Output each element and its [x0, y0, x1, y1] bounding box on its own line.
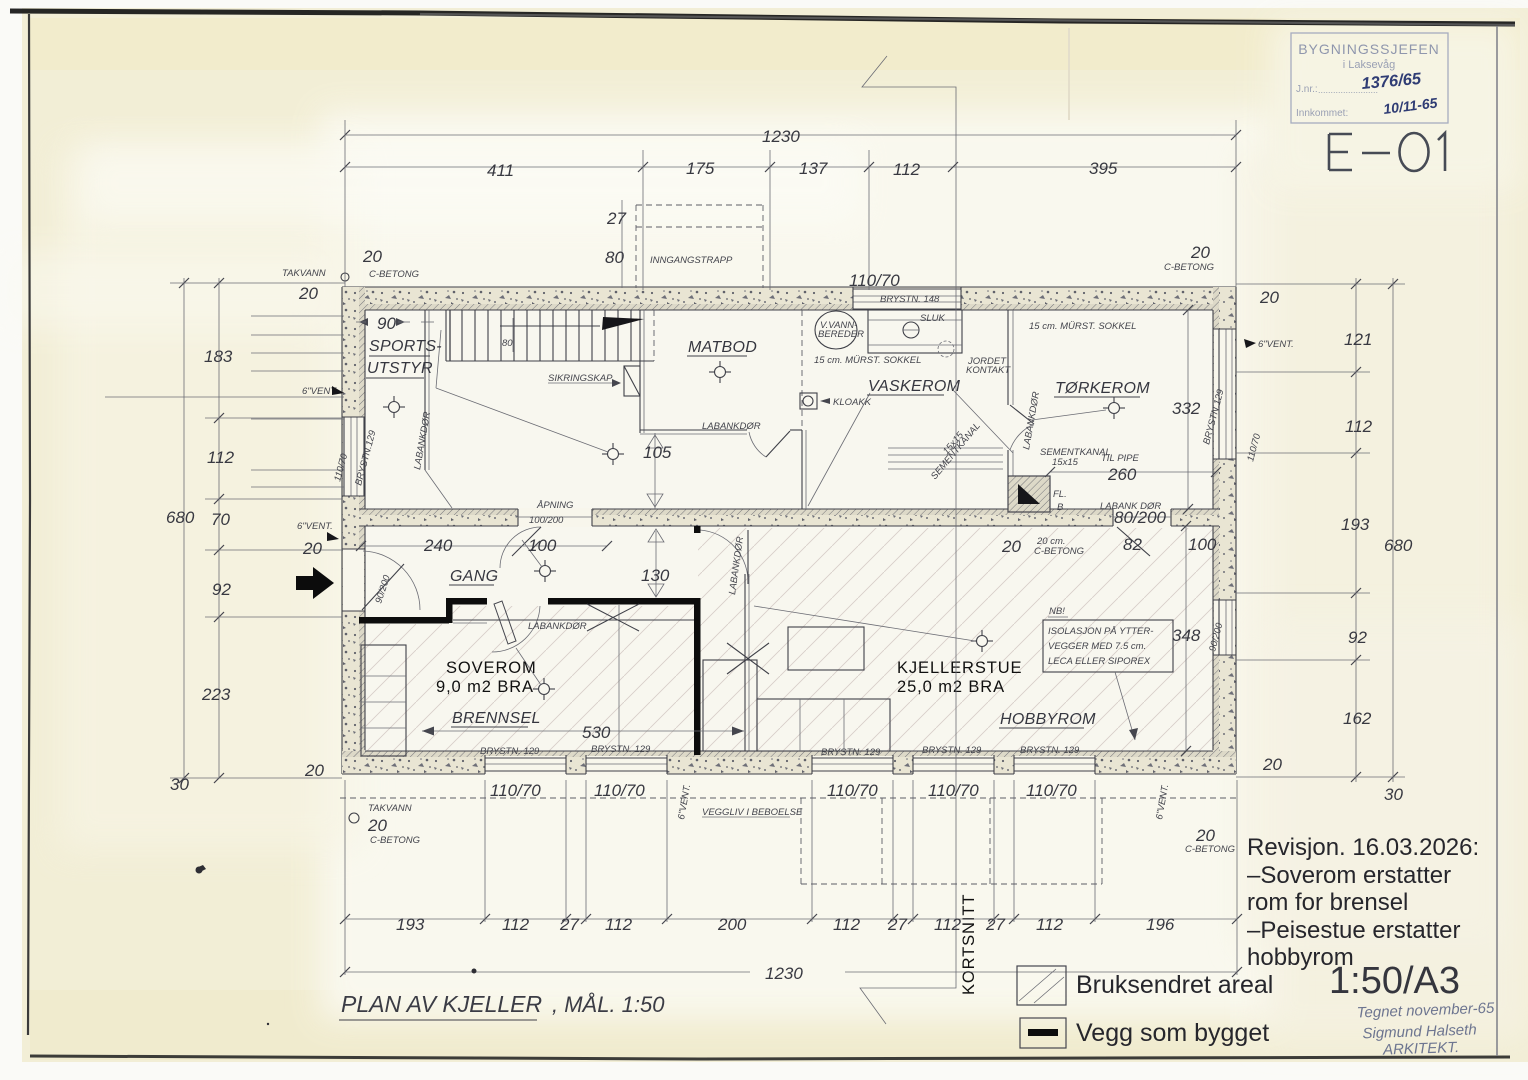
- svg-text:20: 20: [1259, 288, 1279, 307]
- svg-text:SOVEROM: SOVEROM: [446, 659, 537, 677]
- svg-text:INNGANGSTRAPP: INNGANGSTRAPP: [650, 255, 733, 266]
- svg-text:20: 20: [1001, 537, 1021, 556]
- svg-text:B: B: [1057, 502, 1064, 513]
- svg-text:20: 20: [367, 816, 387, 835]
- svg-text:110/70: 110/70: [1026, 781, 1077, 800]
- svg-text:90: 90: [377, 314, 396, 333]
- svg-text:105: 105: [643, 443, 672, 462]
- svg-text:ÅPNING: ÅPNING: [536, 500, 573, 511]
- svg-text:MATBOD: MATBOD: [688, 339, 757, 356]
- svg-text:130: 130: [641, 566, 670, 585]
- svg-text:27: 27: [559, 915, 579, 934]
- svg-text:110/70: 110/70: [827, 781, 878, 800]
- svg-text:Bruksendret areal: Bruksendret areal: [1076, 971, 1273, 999]
- svg-text:9,0 m2 BRA: 9,0 m2 BRA: [436, 678, 534, 696]
- svg-text:Innkommet:: Innkommet:: [1296, 108, 1348, 119]
- svg-text:BRYSTN. 129: BRYSTN. 129: [821, 747, 881, 758]
- svg-text:FL.: FL.: [1053, 489, 1067, 500]
- svg-text:BRENNSEL: BRENNSEL: [452, 710, 541, 727]
- svg-text:BYGNINGSSJEFEN: BYGNINGSSJEFEN: [1298, 41, 1440, 57]
- svg-text:KLOAKK: KLOAKK: [833, 397, 872, 408]
- svg-text:6"VENT.: 6"VENT.: [297, 521, 333, 532]
- svg-text:112: 112: [1036, 915, 1064, 934]
- svg-text:ARKITEKT.: ARKITEKT.: [1382, 1039, 1460, 1059]
- svg-text:121: 121: [1344, 330, 1372, 349]
- svg-text:ISOLASJON PÅ YTTER-: ISOLASJON PÅ YTTER-: [1048, 626, 1153, 637]
- svg-text:, MÅL. 1:50: , MÅL. 1:50: [552, 992, 665, 1017]
- svg-text:110/70: 110/70: [594, 781, 645, 800]
- svg-text:680: 680: [166, 508, 195, 527]
- svg-text:112: 112: [934, 915, 962, 934]
- svg-text:J.nr.:: J.nr.:: [1296, 84, 1318, 95]
- svg-text:112: 112: [833, 915, 861, 934]
- svg-text:KJELLERSTUE: KJELLERSTUE: [897, 659, 1022, 677]
- svg-text:411: 411: [487, 161, 514, 180]
- svg-text:BRYSTN. 129: BRYSTN. 129: [1020, 745, 1080, 756]
- svg-text:223: 223: [201, 685, 231, 704]
- svg-text:80: 80: [605, 248, 624, 267]
- svg-text:80/200: 80/200: [1114, 508, 1167, 527]
- svg-text:Revisjon. 16.03.2026:: Revisjon. 16.03.2026:: [1247, 834, 1479, 861]
- svg-text:70: 70: [211, 510, 230, 529]
- svg-text:20: 20: [304, 761, 324, 780]
- svg-text:1230: 1230: [765, 964, 803, 983]
- svg-text:100/200: 100/200: [529, 515, 564, 526]
- svg-text:1230: 1230: [762, 127, 800, 146]
- svg-text:KORTSNITT: KORTSNITT: [960, 894, 978, 995]
- svg-text:rom for brensel: rom for brensel: [1247, 889, 1408, 916]
- svg-text:110/70: 110/70: [928, 781, 979, 800]
- svg-text:20: 20: [1190, 243, 1210, 262]
- svg-text:27: 27: [985, 915, 1005, 934]
- svg-text:112: 112: [207, 448, 235, 467]
- svg-text:KONTAKT: KONTAKT: [966, 365, 1011, 376]
- svg-text:20: 20: [1262, 755, 1282, 774]
- svg-text:100: 100: [1188, 535, 1217, 554]
- svg-text:VEGGER MED 7.5 cm.: VEGGER MED 7.5 cm.: [1048, 641, 1146, 652]
- svg-text:92: 92: [212, 580, 231, 599]
- svg-text:30: 30: [1384, 785, 1403, 804]
- svg-text:112: 112: [893, 160, 921, 179]
- svg-text:TØRKEROM: TØRKEROM: [1055, 380, 1150, 397]
- svg-text:SLUK: SLUK: [920, 313, 945, 324]
- svg-text:NB!: NB!: [1049, 606, 1065, 617]
- svg-text:112: 112: [502, 915, 530, 934]
- svg-text:BRYSTN. 129: BRYSTN. 129: [591, 744, 651, 755]
- svg-text:Vegg som bygget: Vegg som bygget: [1076, 1019, 1269, 1047]
- svg-text:112: 112: [1345, 417, 1373, 436]
- svg-text:196: 196: [1146, 915, 1175, 934]
- svg-text:80: 80: [502, 338, 513, 349]
- svg-text:110/70: 110/70: [849, 271, 900, 290]
- svg-text:680: 680: [1384, 536, 1413, 555]
- svg-text:332: 332: [1172, 399, 1201, 418]
- svg-text:–Soverom erstatter: –Soverom erstatter: [1247, 862, 1451, 889]
- svg-text:20: 20: [298, 284, 318, 303]
- svg-text:VEGGLIV I BEBOELSE: VEGGLIV I BEBOELSE: [702, 807, 803, 818]
- svg-text:193: 193: [396, 915, 425, 934]
- svg-text:TAKVANN: TAKVANN: [282, 268, 326, 279]
- svg-text:260: 260: [1107, 465, 1137, 484]
- svg-text:HOBBYROM: HOBBYROM: [1000, 711, 1096, 728]
- svg-text:LABANKDØR: LABANKDØR: [702, 421, 761, 432]
- svg-text:240: 240: [423, 536, 453, 555]
- svg-text:LABANKDØR: LABANKDØR: [528, 621, 587, 632]
- svg-text:BRYSTN. 129: BRYSTN. 129: [922, 745, 982, 756]
- svg-text:BRYSTN. 148: BRYSTN. 148: [880, 294, 940, 305]
- svg-text:C-BETONG: C-BETONG: [370, 835, 420, 846]
- svg-text:UTSTYR: UTSTYR: [367, 360, 433, 377]
- svg-text:C-BETONG: C-BETONG: [1185, 844, 1235, 855]
- svg-text:20: 20: [1195, 826, 1215, 845]
- svg-text:183: 183: [204, 347, 233, 366]
- svg-text:175: 175: [686, 159, 715, 178]
- svg-text:VASKEROM: VASKEROM: [868, 378, 961, 395]
- svg-text:112: 112: [605, 915, 633, 934]
- svg-text:SPORTS-: SPORTS-: [369, 338, 442, 355]
- svg-text:LECA ELLER SIPOREX: LECA ELLER SIPOREX: [1048, 656, 1151, 667]
- svg-text:TAKVANN: TAKVANN: [368, 803, 412, 814]
- svg-text:27: 27: [887, 915, 907, 934]
- svg-text:15x15: 15x15: [1052, 457, 1079, 468]
- svg-text:193: 193: [1341, 515, 1370, 534]
- svg-text:–Peisestue erstatter: –Peisestue erstatter: [1247, 917, 1460, 944]
- svg-text:BRYSTN. 129: BRYSTN. 129: [480, 746, 540, 757]
- svg-text:25,0 m2 BRA: 25,0 m2 BRA: [897, 678, 1005, 696]
- svg-text:110/70: 110/70: [490, 781, 541, 800]
- svg-text:C-BETONG: C-BETONG: [369, 269, 419, 280]
- svg-text:100: 100: [528, 536, 557, 555]
- svg-text:395: 395: [1089, 159, 1118, 178]
- svg-text:137: 137: [799, 159, 828, 178]
- svg-text:200: 200: [717, 915, 747, 934]
- svg-text:27: 27: [606, 209, 626, 228]
- svg-text:6"VENT.: 6"VENT.: [1258, 339, 1294, 350]
- svg-text:92: 92: [1348, 628, 1367, 647]
- svg-text:348: 348: [1172, 626, 1201, 645]
- svg-text:15 cm. MÜRST. SOKKEL: 15 cm. MÜRST. SOKKEL: [814, 355, 921, 366]
- svg-text:20: 20: [302, 539, 322, 558]
- svg-text:20: 20: [362, 247, 382, 266]
- svg-text:15 cm. MÜRST. SOKKEL: 15 cm. MÜRST. SOKKEL: [1029, 321, 1136, 332]
- svg-text:GANG: GANG: [450, 568, 498, 585]
- svg-text:PLAN AV KJELLER: PLAN AV KJELLER: [341, 991, 542, 1017]
- svg-text:82: 82: [1123, 535, 1142, 554]
- svg-text:162: 162: [1343, 709, 1372, 728]
- svg-text:1:50/A3: 1:50/A3: [1329, 960, 1460, 1002]
- svg-text:i Laksevåg: i Laksevåg: [1343, 59, 1396, 71]
- svg-text:C-BETONG: C-BETONG: [1034, 546, 1084, 557]
- svg-text:530: 530: [582, 723, 611, 742]
- svg-text:C-BETONG: C-BETONG: [1164, 262, 1214, 273]
- svg-text:BEREDER: BEREDER: [818, 329, 864, 340]
- svg-text:SIKRINGSKAP: SIKRINGSKAP: [548, 373, 613, 384]
